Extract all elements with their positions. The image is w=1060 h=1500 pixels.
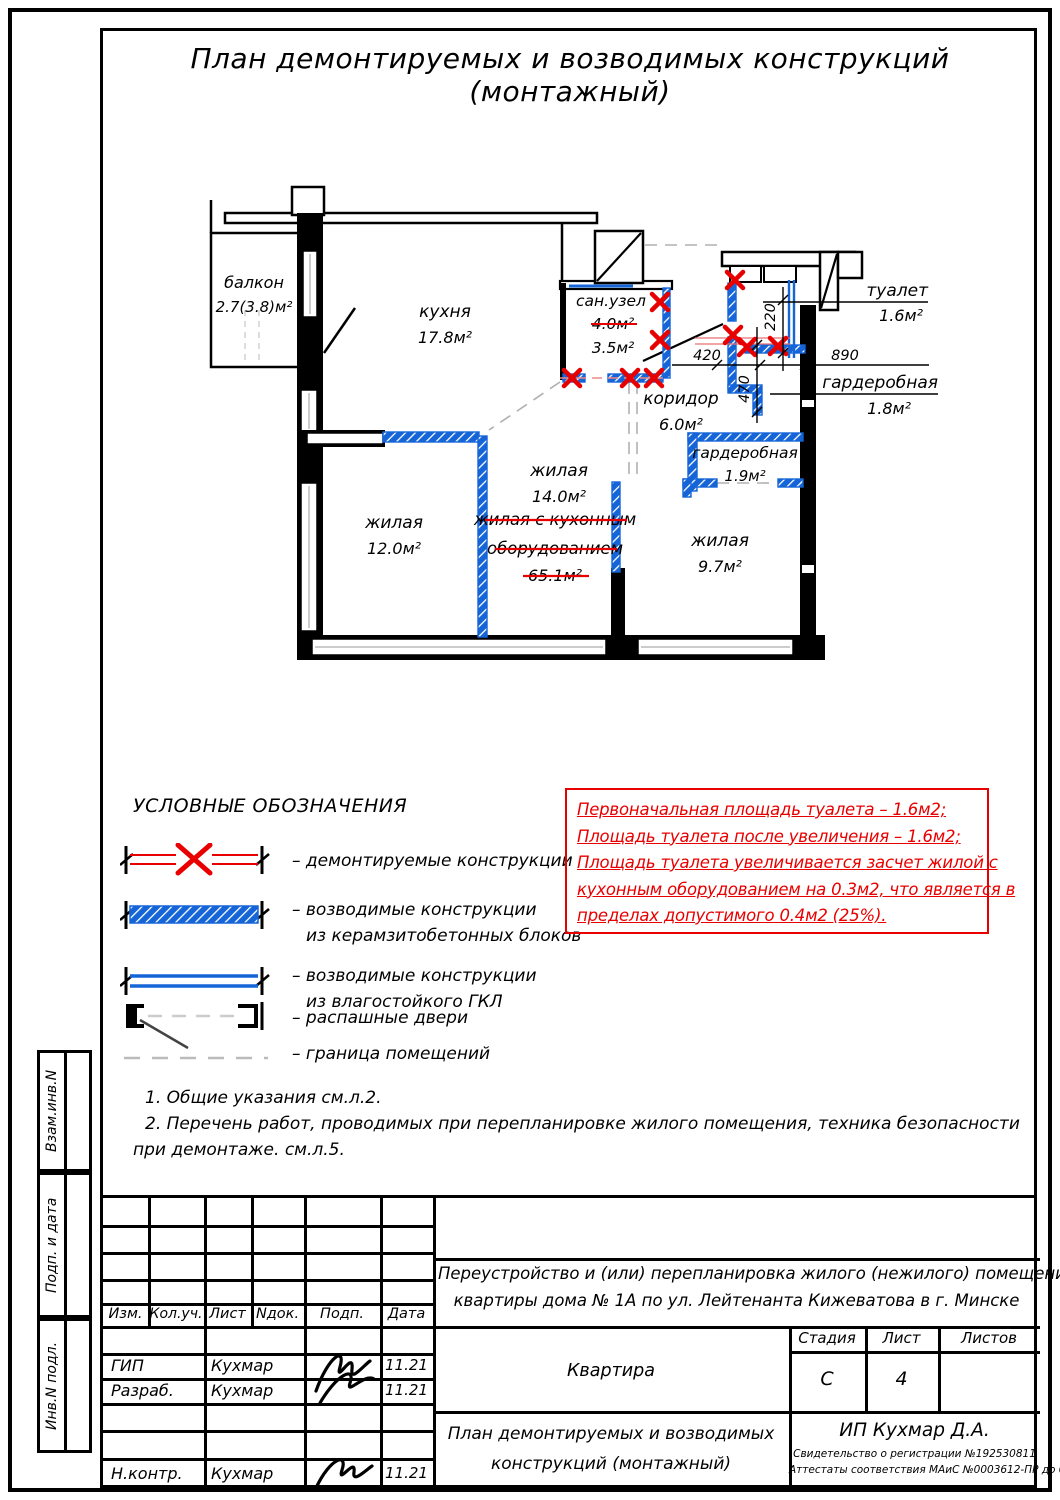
room-area-toilet: 1.6м²	[879, 306, 924, 325]
wall-notch	[292, 187, 324, 215]
signature-nkontr	[308, 1450, 380, 1494]
note-2b: при демонтаже. см.л.5.	[133, 1140, 345, 1160]
room-area-living12: 12.0м²	[367, 539, 422, 558]
drawing-sheet: План демонтируемых и возводимых конструк…	[0, 0, 1060, 1500]
dim-470: 470	[737, 375, 753, 403]
sheet-title: План демонтируемых и возводимых конструк…	[110, 42, 1030, 108]
stamp-object-name: Квартира	[433, 1361, 789, 1381]
stamp-stage-header: Стадия	[789, 1329, 865, 1347]
legend-label-demolition: – демонтируемые конструкции	[292, 851, 573, 871]
stamp-sheets-header: Листов	[938, 1329, 1040, 1347]
red-note-line: Первоначальная площадь туалета – 1.6м2;	[577, 797, 977, 824]
legend-label-gkl: – возводимые конструкции	[292, 966, 537, 986]
room-area-balcony: 2.7(3.8)м²	[216, 298, 293, 316]
stamp-role-gip: ГИП	[111, 1356, 144, 1375]
room-label-corridor: коридор	[643, 389, 719, 409]
side-label-podp: Подп. и дата	[40, 1175, 64, 1315]
room-area-corridor: 6.0м²	[659, 415, 704, 434]
stamp-sheet-header: Лист	[865, 1329, 938, 1347]
stamp-date-razrab: 11.21	[380, 1381, 433, 1399]
stamp-role-nkontr: Н.контр.	[111, 1464, 183, 1483]
legend-symbol-gkl	[120, 964, 275, 998]
red-note-line: кухонным оборудованием на 0.3м2, что явл…	[577, 877, 977, 904]
legend-symbol-doors	[120, 1000, 275, 1052]
note-2: 2. Перечень работ, проводимых при перепл…	[145, 1114, 1020, 1134]
wall-right	[800, 305, 816, 637]
sanuzel-left-wall	[560, 283, 566, 380]
stamp-doc-title-2: конструкций (монтажный)	[433, 1454, 789, 1474]
stamp-name-razrab: Кухмар	[211, 1381, 273, 1400]
stamp-project-line1: Переустройство и (или) перепланировка жи…	[438, 1264, 1035, 1283]
legend-label-doors: – распашные двери	[292, 1008, 468, 1028]
stamp-header-data: Дата	[380, 1306, 433, 1322]
side-label-vzam: Взам.инв.N	[40, 1053, 64, 1169]
room-label-wardrobe2: гардеробная	[692, 444, 798, 462]
stamp-header-kol: Кол.уч.	[148, 1306, 204, 1322]
stamp-firm-name: ИП Кухмар Д.А.	[789, 1420, 1040, 1441]
stamp-sheet-value: 4	[865, 1368, 938, 1390]
floor-plan: 420 890 220 470 туалет 1.6м² гардеробная…	[197, 175, 942, 680]
legend-label-keramzit: – возводимые конструкции	[292, 900, 537, 920]
stamp-name-gip: Кухмар	[211, 1356, 273, 1375]
side-box-inv: Инв.N подл.	[37, 1318, 92, 1453]
room-label-toilet: туалет	[866, 281, 929, 301]
legend-label-boundary: – граница помещений	[292, 1044, 490, 1064]
dim-420: 420	[693, 348, 721, 364]
room-area-wardrobe1: 1.8м²	[867, 399, 912, 418]
side-label-inv: Инв.N подл.	[40, 1321, 64, 1450]
stamp-date-nkontr: 11.21	[380, 1464, 433, 1482]
room-label-kitchen: кухня	[419, 302, 471, 322]
title-block: Изм. Кол.уч. Лист Nдок. Подп. Дата ГИП К…	[100, 1195, 1037, 1488]
wall-mid	[611, 568, 625, 637]
dim-890: 890	[831, 348, 859, 364]
stamp-header-izm: Изм.	[103, 1306, 148, 1322]
stamp-firm-cert2: Аттестаты соответствия МАиС №0003612-ПР …	[789, 1464, 1040, 1476]
side-box-podp: Подп. и дата	[37, 1172, 92, 1318]
wall-top	[225, 213, 597, 223]
stamp-doc-title-1: План демонтируемых и возводимых	[433, 1424, 789, 1444]
stamp-project-line2: квартиры дома № 1А по ул. Лейтенанта Киж…	[438, 1291, 1035, 1310]
red-note-box: Первоначальная площадь туалета – 1.6м2; …	[565, 788, 989, 934]
stamp-header-list: Лист	[204, 1306, 251, 1322]
red-note-line: Площадь туалета увеличивается засчет жил…	[577, 850, 977, 877]
room-label-living12: жилая	[364, 513, 423, 533]
legend-heading: УСЛОВНЫЕ ОБОЗНАЧЕНИЯ	[133, 795, 407, 817]
room-label-sanuzel: сан.узел	[576, 292, 646, 310]
signature-gip-razrab	[308, 1341, 380, 1405]
legend-symbol-demolition	[120, 843, 275, 877]
dim-220: 220	[763, 303, 779, 331]
legend-symbol-keramzit	[120, 898, 275, 932]
room-label-living14: жилая	[529, 461, 588, 481]
room-label-living97: жилая	[690, 531, 749, 551]
room-area-living97: 9.7м²	[698, 557, 743, 576]
room-area-living14: 14.0м²	[532, 487, 587, 506]
stamp-role-razrab: Разраб.	[111, 1381, 174, 1400]
stamp-firm-cert1: Свидетельство о регистрации №192530811	[789, 1448, 1040, 1460]
stamp-date-gip: 11.21	[380, 1356, 433, 1374]
legend-symbol-boundary	[120, 1048, 275, 1068]
side-box-vzam: Взам.инв.N	[37, 1050, 92, 1172]
stamp-header-podp: Подп.	[304, 1306, 380, 1322]
note-1: 1. Общие указания см.л.2.	[145, 1088, 381, 1108]
red-note-line: пределах допустимого 0.4м2 (25%).	[577, 903, 977, 930]
red-note-line: Площадь туалета после увеличения – 1.6м2…	[577, 824, 977, 851]
room-area-sanuzel-new: 3.5м²	[592, 339, 635, 357]
stamp-header-ndok: Nдок.	[251, 1306, 304, 1322]
room-area-kitchen: 17.8м²	[418, 328, 473, 347]
stamp-name-nkontr: Кухмар	[211, 1464, 273, 1483]
balcony-door-swing	[324, 308, 355, 353]
room-area-wardrobe2: 1.9м²	[724, 467, 765, 485]
legend-label-keramzit-2: из керамзитобетонных блоков	[306, 926, 581, 946]
stamp-stage-value: С	[789, 1368, 865, 1390]
room-label-balcony: балкон	[224, 273, 284, 292]
room-label-wardrobe1: гардеробная	[822, 373, 938, 393]
